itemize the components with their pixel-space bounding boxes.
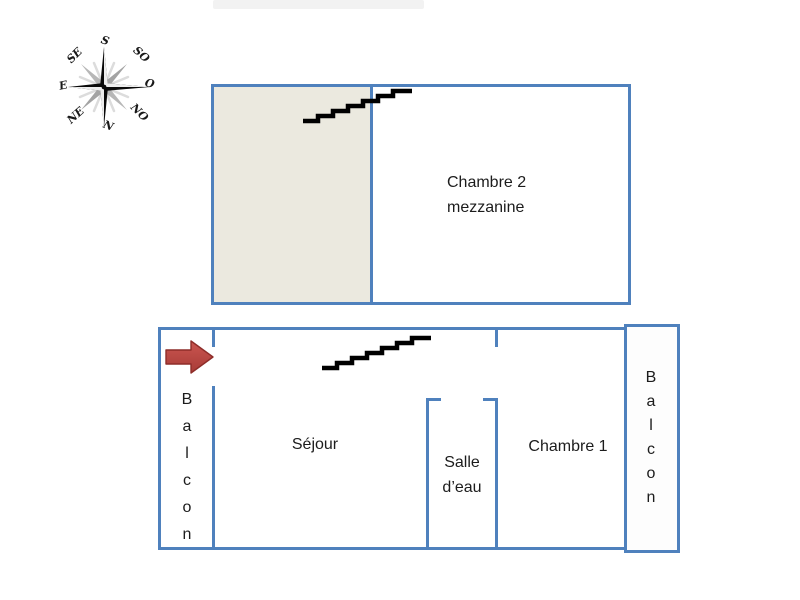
- stairs-icon-upper: [300, 85, 415, 125]
- room-label-chambre2-line2: mezzanine: [447, 195, 526, 220]
- room-label-sejour: Séjour: [270, 432, 360, 457]
- compass-rose: S SO O NO N NE E SE: [55, 30, 155, 142]
- room-label-salle-deau-line2: d’eau: [428, 475, 496, 500]
- entrance-arrow-icon: [165, 338, 215, 376]
- compass-label-north: N: [100, 117, 116, 134]
- room-label-balcon-left: Balcon: [176, 386, 198, 548]
- compass-label-east: E: [57, 78, 69, 93]
- redacted-title-bar: [213, 0, 424, 9]
- floor-plan-page: S SO O NO N NE E SE Chambre 2 mezzanine: [0, 0, 800, 600]
- wall-balcony-left: [212, 386, 215, 547]
- compass-label-south-west: SO: [130, 44, 152, 66]
- wall-salle-deau-right-cap: [483, 398, 498, 401]
- room-label-chambre1: Chambre 1: [518, 434, 618, 459]
- room-label-salle-deau-line1: Salle: [428, 450, 496, 475]
- compass-label-west: O: [144, 76, 155, 91]
- wall-chambre1-stub: [495, 330, 498, 347]
- room-label-chambre2: Chambre 2 mezzanine: [447, 170, 526, 220]
- compass-label-south-east: SE: [64, 45, 85, 66]
- wall-salle-deau-left-cap: [426, 398, 441, 401]
- room-label-salle-deau: Salle d’eau: [428, 450, 496, 500]
- stairs-icon-lower: [319, 331, 434, 371]
- compass-label-south: S: [99, 33, 111, 48]
- room-label-chambre2-line1: Chambre 2: [447, 170, 526, 195]
- compass-label-north-west: NO: [127, 100, 151, 124]
- room-label-balcon-right: Balcon: [640, 366, 662, 510]
